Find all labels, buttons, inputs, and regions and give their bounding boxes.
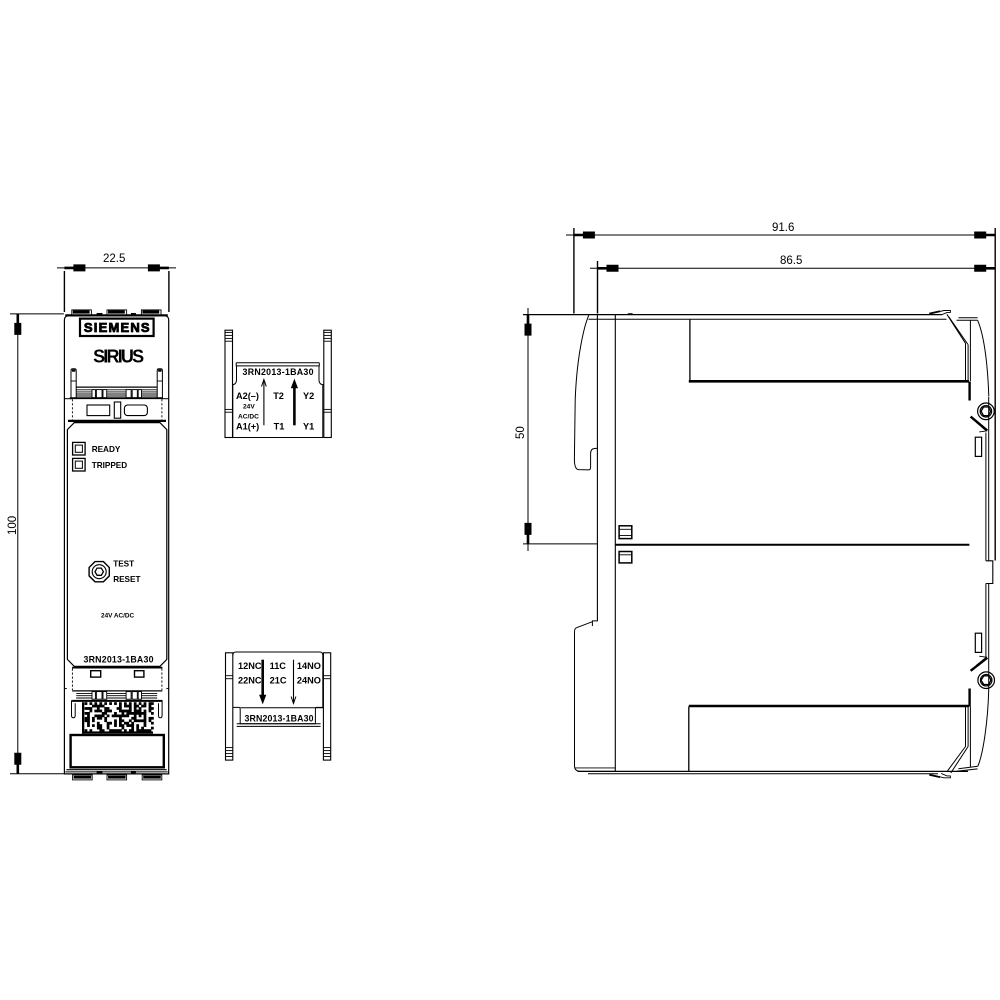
svg-text:86.5: 86.5 [780,255,802,267]
svg-text:A1(+): A1(+) [236,422,259,432]
svg-text:SIEMENS: SIEMENS [84,320,150,335]
svg-text:T1: T1 [274,422,285,432]
svg-text:READY: READY [92,445,121,454]
svg-text:24V AC/DC: 24V AC/DC [101,613,135,620]
svg-text:AC/DC: AC/DC [238,413,259,420]
svg-text:TRIPPED: TRIPPED [92,461,128,470]
svg-text:22NC: 22NC [238,676,262,686]
svg-text:21C: 21C [270,676,287,686]
svg-text:24NO: 24NO [297,676,321,686]
svg-text:100: 100 [7,516,19,535]
svg-text:14NO: 14NO [297,661,321,671]
svg-text:Y1: Y1 [303,422,314,432]
svg-text:12NC: 12NC [238,661,262,671]
svg-text:A2(–): A2(–) [236,391,259,401]
svg-text:91.6: 91.6 [772,222,794,234]
svg-text:11C: 11C [270,661,287,671]
svg-text:RESET: RESET [113,575,140,584]
svg-text:3RN2013-1BA30: 3RN2013-1BA30 [245,713,314,723]
svg-text:24V: 24V [243,404,255,411]
svg-text:Y2: Y2 [303,391,314,401]
svg-text:T2: T2 [273,391,284,401]
svg-text:SIRIUS: SIRIUS [93,347,144,367]
svg-text:22.5: 22.5 [103,253,125,265]
svg-text:3RN2013-1BA30: 3RN2013-1BA30 [84,654,154,664]
svg-text:50: 50 [515,426,527,439]
svg-text:3RN2013-1BA30: 3RN2013-1BA30 [243,367,314,377]
svg-text:TEST: TEST [113,560,134,569]
